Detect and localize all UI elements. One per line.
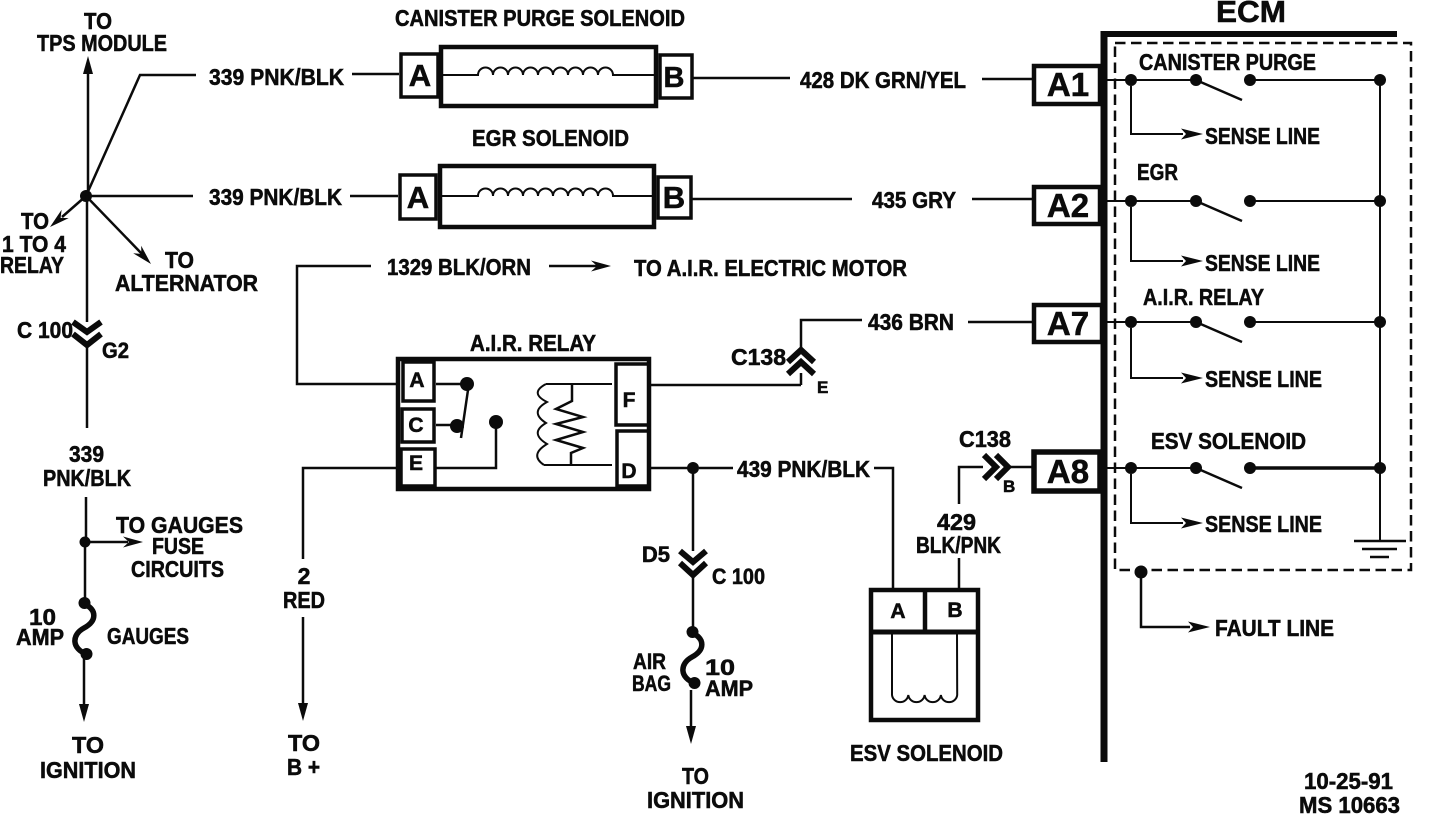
svg-text:428 DK GRN/YEL: 428 DK GRN/YEL xyxy=(800,67,966,93)
svg-text:10-25-91: 10-25-91 xyxy=(1304,768,1393,794)
svg-text:ECM: ECM xyxy=(1216,0,1286,29)
svg-text:C138: C138 xyxy=(731,344,786,370)
svg-text:TPS MODULE: TPS MODULE xyxy=(37,30,167,56)
svg-text:A: A xyxy=(890,600,905,623)
svg-text:G2: G2 xyxy=(102,338,129,363)
svg-text:CANISTER PURGE: CANISTER PURGE xyxy=(1139,49,1316,75)
svg-text:IGNITION: IGNITION xyxy=(40,757,136,783)
svg-text:ESV SOLENOID: ESV SOLENOID xyxy=(850,740,1003,766)
svg-text:A.I.R. RELAY: A.I.R. RELAY xyxy=(1143,284,1264,310)
svg-text:CANISTER PURGE SOLENOID: CANISTER PURGE SOLENOID xyxy=(395,5,685,31)
svg-text:AMP: AMP xyxy=(16,624,64,650)
svg-text:SENSE LINE: SENSE LINE xyxy=(1205,511,1322,537)
svg-text:339: 339 xyxy=(69,441,104,467)
svg-text:B: B xyxy=(663,180,685,215)
svg-text:A: A xyxy=(409,369,424,392)
svg-text:ESV SOLENOID: ESV SOLENOID xyxy=(1151,428,1306,454)
svg-text:EGR: EGR xyxy=(1137,159,1178,185)
svg-text:339 PNK/BLK: 339 PNK/BLK xyxy=(209,184,342,210)
svg-text:D5: D5 xyxy=(642,542,670,567)
svg-text:B: B xyxy=(664,62,685,94)
svg-text:E: E xyxy=(817,378,828,397)
svg-text:RED: RED xyxy=(283,587,325,613)
svg-text:C 100: C 100 xyxy=(712,564,765,589)
svg-text:E: E xyxy=(409,452,423,475)
svg-text:RELAY: RELAY xyxy=(0,252,64,278)
svg-text:A: A xyxy=(409,58,431,93)
svg-text:A: A xyxy=(407,180,429,215)
svg-text:SENSE LINE: SENSE LINE xyxy=(1205,123,1320,149)
svg-text:IGNITION: IGNITION xyxy=(647,787,744,813)
svg-text:ALTERNATOR: ALTERNATOR xyxy=(115,270,258,296)
svg-text:AMP: AMP xyxy=(705,676,753,701)
svg-text:B: B xyxy=(1003,477,1015,496)
svg-text:A2: A2 xyxy=(1047,187,1089,224)
svg-text:C 100: C 100 xyxy=(17,317,73,343)
svg-text:B +: B + xyxy=(287,754,320,780)
svg-text:BLK/PNK: BLK/PNK xyxy=(916,532,1001,558)
svg-text:A.I.R. RELAY: A.I.R. RELAY xyxy=(470,330,596,356)
svg-text:SENSE LINE: SENSE LINE xyxy=(1205,366,1322,392)
svg-text:1329 BLK/ORN: 1329 BLK/ORN xyxy=(387,254,531,280)
svg-text:439 PNK/BLK: 439 PNK/BLK xyxy=(737,456,870,482)
svg-text:CIRCUITS: CIRCUITS xyxy=(131,556,224,582)
svg-text:FAULT LINE: FAULT LINE xyxy=(1215,615,1334,641)
svg-text:C: C xyxy=(408,414,423,437)
svg-text:TO: TO xyxy=(288,730,320,756)
svg-text:A8: A8 xyxy=(1047,453,1089,490)
svg-text:B: B xyxy=(947,599,962,622)
svg-text:TO A.I.R. ELECTRIC MOTOR: TO A.I.R. ELECTRIC MOTOR xyxy=(634,255,907,281)
svg-text:435 GRY: 435 GRY xyxy=(872,187,956,213)
svg-text:MS 10663: MS 10663 xyxy=(1299,792,1400,814)
svg-text:A1: A1 xyxy=(1047,66,1089,103)
svg-text:C138: C138 xyxy=(959,426,1011,452)
svg-text:GAUGES: GAUGES xyxy=(107,623,189,649)
svg-text:D: D xyxy=(621,460,636,483)
svg-text:436 BRN: 436 BRN xyxy=(868,309,954,335)
svg-text:EGR SOLENOID: EGR SOLENOID xyxy=(472,125,629,151)
svg-text:TO: TO xyxy=(72,732,104,758)
svg-text:BAG: BAG xyxy=(632,671,671,696)
svg-text:TO: TO xyxy=(682,763,709,789)
svg-text:F: F xyxy=(623,389,636,412)
svg-text:SENSE LINE: SENSE LINE xyxy=(1205,250,1320,276)
svg-text:A7: A7 xyxy=(1047,305,1089,342)
svg-text:2: 2 xyxy=(298,563,311,589)
svg-text:339 PNK/BLK: 339 PNK/BLK xyxy=(209,64,344,90)
svg-text:PNK/BLK: PNK/BLK xyxy=(43,465,131,491)
